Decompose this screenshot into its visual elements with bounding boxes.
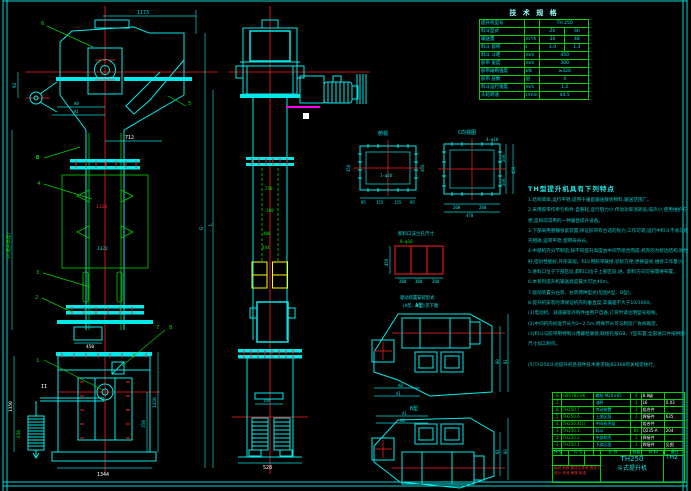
svg-text:A0: A0 [400, 418, 405, 423]
svg-text:8: 8 [169, 325, 172, 331]
bom-row: 4 TH250.4(1) 中间机壳组 组合件 [553, 420, 684, 427]
svg-text:450: 450 [384, 258, 389, 266]
svg-text:144: 144 [263, 398, 271, 403]
spec-row: 料斗型式 Zh Sh [480, 27, 588, 35]
svg-text:7: 7 [156, 325, 159, 331]
discharge-flange-detail: 卸料口法兰孔尺寸 8-φ18 450 200 300 200 驱动装置安装型式 … [384, 230, 443, 309]
svg-text:5: 5 [188, 101, 191, 107]
svg-text:450: 450 [86, 344, 94, 350]
front-elevation: 1173 A0 A1 1322 712 450 1344 1130 6 5 4 … [5, 6, 218, 478]
svg-text:1130: 1130 [96, 204, 107, 210]
svg-text:1450: 1450 [152, 397, 158, 408]
svg-text:470: 470 [466, 213, 474, 218]
spec-row: 胶带 宽度 mm 300 [480, 59, 588, 67]
spec-row: 料斗运行速度 m/s 1.2 [480, 83, 588, 91]
svg-text:B0: B0 [495, 359, 500, 364]
svg-text:200: 200 [501, 178, 506, 186]
svg-text:400: 400 [263, 231, 271, 236]
svg-text:L: L [208, 223, 214, 226]
svg-text:155: 155 [394, 200, 402, 205]
svg-text:200: 200 [501, 154, 506, 162]
svg-text:A1: A1 [402, 411, 407, 416]
svg-text:92: 92 [12, 82, 18, 88]
svg-text:250: 250 [265, 186, 273, 191]
svg-text:C向视图: C向视图 [458, 129, 476, 136]
features-body: 1.结构简单,运行平稳,适用于垂直输送散状物料,输送范围广。 2.采用胶带作牵引… [528, 196, 689, 371]
cad-drawing-sheet: 1173 A0 A1 1322 712 450 1344 1130 6 5 4 … [0, 0, 691, 491]
title-block-signatures: 标记 处数 更改文件号 签字 日期 设计 校对 审核 批准 [553, 451, 601, 482]
svg-text:200: 200 [453, 205, 461, 210]
svg-text:B1: B1 [503, 359, 508, 364]
svg-text:4: 4 [37, 181, 41, 187]
svg-text:300: 300 [415, 279, 423, 284]
svg-text:200: 200 [479, 205, 487, 210]
bom-table: 8 GB5782-86 螺栓 M20×65 4 8.8级 7 油杯 1 L6 0… [552, 392, 685, 456]
spec-row: 输送量 m³/h 30 48 [480, 35, 588, 43]
svg-text:A0: A0 [398, 383, 403, 388]
spec-row: 料斗 容积 l 3.0 1.3 [480, 43, 588, 51]
svg-text:A1: A1 [396, 391, 401, 396]
bom-row: 5 TH250.6 上部区段 1 焊接件 635 [553, 413, 684, 420]
features-title: TH型提升机具有下列特点 [528, 183, 689, 193]
svg-text:180: 180 [266, 208, 274, 213]
svg-text:1173: 1173 [137, 10, 149, 16]
svg-text:A0: A0 [74, 101, 79, 106]
bom-row: 3 TH250.3 料斗 84 Q235-A 204 [553, 427, 684, 434]
bom-row: 8 GB5782-86 螺栓 M20×65 4 8.8级 [553, 393, 684, 399]
svg-text:G: G [199, 227, 205, 230]
flange-view-c: C向视图 4-φ18 200 200 450 200 200 470 [438, 129, 516, 218]
svg-text:4-φ18: 4-φ18 [486, 137, 499, 142]
svg-text:驱动装置安装型式: 驱动装置安装型式 [400, 294, 435, 301]
svg-text:B1: B1 [495, 449, 500, 454]
product-name: 斗式提升机 [601, 464, 663, 473]
features-notes: TH型提升机具有下列特点 1.结构简单,运行平稳,适用于垂直输送散状物料,输送范… [528, 183, 689, 371]
svg-text:350: 350 [346, 164, 351, 172]
svg-text:155: 155 [376, 200, 384, 205]
svg-text:1344: 1344 [97, 472, 109, 478]
svg-text:650: 650 [16, 430, 22, 438]
svg-text:200: 200 [432, 279, 440, 284]
side-elevation: 250 180 400 444 144 528 [228, 6, 505, 474]
drive-detail-b: B型 A1 A0 B1 B0 [372, 405, 508, 488]
svg-text:B0: B0 [503, 449, 508, 454]
svg-text:450: 450 [511, 166, 516, 174]
model-number: TH250 [601, 454, 663, 464]
svg-text:444: 444 [262, 245, 270, 250]
svg-text:H(提升高度): H(提升高度) [5, 232, 12, 258]
title-block: 标记 处数 更改文件号 签字 日期 设计 校对 审核 批准 TH250 斗式提升… [552, 450, 685, 483]
bom-row: 2 TH250.2 中部机壳 1 焊接件 [553, 434, 684, 441]
svg-text:712: 712 [125, 135, 134, 141]
svg-text:3: 3 [36, 270, 39, 276]
bom-row: 6 TH250.7 传动装置 1 组合件 [553, 406, 684, 413]
spec-row: 胶带 层数 层 4 [480, 75, 588, 83]
spec-row: 提升机型号 TH 250 [480, 20, 588, 27]
drive-detail-a: A型 A0 A1 B0 B1 [372, 302, 508, 396]
svg-text:A1: A1 [74, 109, 79, 114]
bom-row: 1 TH250.1 下部区段 1 焊接件 见图 [553, 441, 684, 448]
svg-text:350: 350 [141, 420, 147, 428]
svg-text:2: 2 [35, 295, 38, 301]
svg-text:B型: B型 [410, 405, 418, 412]
svg-text:A型: A型 [415, 302, 423, 309]
svg-text:300: 300 [420, 164, 425, 172]
svg-text:8-φ18: 8-φ18 [400, 239, 413, 244]
spec-table: 技 术 规 格 提升机型号 TH 250 料斗型式 Zh Sh 输送量 m³/h… [479, 8, 589, 100]
spec-table-title: 技 术 规 格 [479, 8, 589, 18]
spec-row: 料斗 斗距 mm 450 [480, 51, 588, 59]
svg-text:1-φ20: 1-φ20 [380, 173, 393, 178]
svg-text:1350: 1350 [8, 401, 14, 412]
title-block-name: TH250 斗式提升机 [601, 451, 664, 482]
title-block-grid [553, 451, 600, 466]
svg-text:200: 200 [399, 279, 407, 284]
flange-view-top: 俯视 350 300 95 155 155 95 1-φ20 [346, 130, 425, 205]
svg-text:II: II [41, 384, 47, 390]
svg-text:528: 528 [263, 465, 272, 471]
svg-text:俯视: 俯视 [378, 130, 388, 137]
svg-text:95: 95 [361, 200, 366, 205]
signature-row: 设计 校对 审核 批准 [553, 471, 600, 476]
svg-text:6: 6 [41, 21, 44, 27]
spec-row: 胶带破断强度 kN ≥320 [480, 67, 588, 75]
bom-row: 7 油杯 1 L6 0.03 [553, 399, 684, 406]
spec-row: 头轮转速 r/min 44.5 [480, 91, 588, 99]
svg-text:1: 1 [36, 358, 39, 364]
svg-text:卸料口法兰孔尺寸: 卸料口法兰孔尺寸 [398, 230, 434, 237]
svg-text:95: 95 [410, 200, 415, 205]
drawing-number: TH2 [664, 451, 684, 482]
svg-text:1322: 1322 [97, 246, 108, 252]
svg-text:B: B [36, 155, 40, 161]
